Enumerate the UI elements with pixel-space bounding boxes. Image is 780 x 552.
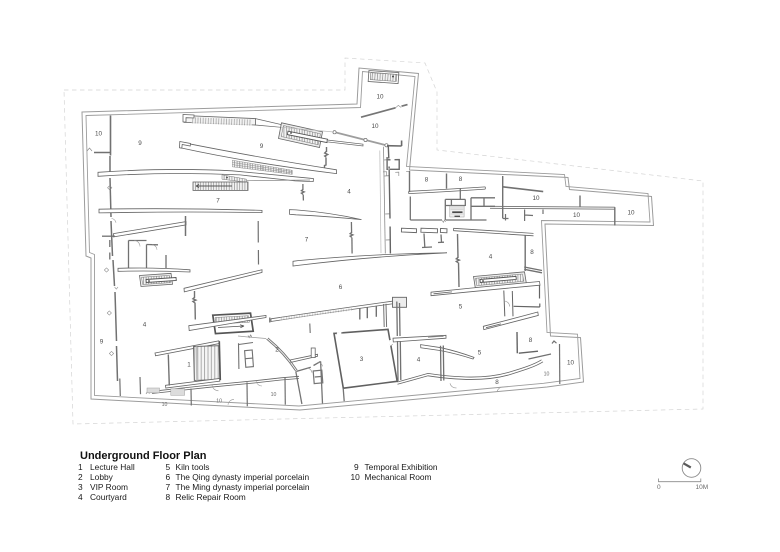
svg-text:6: 6 xyxy=(166,472,171,482)
svg-text:9: 9 xyxy=(354,462,359,472)
svg-text:Lecture Hall: Lecture Hall xyxy=(90,462,135,472)
svg-text:Mechanical Room: Mechanical Room xyxy=(365,472,432,482)
svg-text:9: 9 xyxy=(138,140,142,147)
svg-text:Lobby: Lobby xyxy=(90,472,114,482)
svg-text:5: 5 xyxy=(459,304,463,311)
svg-text:The Ming dynasty imperial porc: The Ming dynasty imperial porcelain xyxy=(176,482,310,492)
svg-text:0: 0 xyxy=(657,484,661,491)
svg-text:8: 8 xyxy=(530,249,534,256)
svg-text:Underground Floor Plan: Underground Floor Plan xyxy=(80,450,207,462)
svg-text:4: 4 xyxy=(143,322,147,329)
svg-text:8: 8 xyxy=(425,177,429,184)
svg-text:Relic Repair Room: Relic Repair Room xyxy=(176,492,246,502)
svg-text:2: 2 xyxy=(275,347,279,354)
svg-text:Temporal Exhibition: Temporal Exhibition xyxy=(365,462,438,472)
svg-text:7: 7 xyxy=(305,237,309,244)
svg-text:1: 1 xyxy=(78,462,83,472)
svg-text:3: 3 xyxy=(78,482,83,492)
svg-text:5: 5 xyxy=(166,462,171,472)
svg-text:10: 10 xyxy=(573,212,581,219)
svg-text:6: 6 xyxy=(339,284,343,291)
svg-text:7: 7 xyxy=(216,198,220,205)
svg-text:10M: 10M xyxy=(696,484,709,491)
svg-text:8: 8 xyxy=(495,379,499,386)
svg-text:9: 9 xyxy=(100,339,104,346)
svg-text:8: 8 xyxy=(459,176,463,183)
svg-text:Courtyard: Courtyard xyxy=(90,492,127,502)
svg-text:8: 8 xyxy=(529,337,533,344)
svg-text:2: 2 xyxy=(78,472,83,482)
svg-text:4: 4 xyxy=(489,254,493,261)
svg-text:4: 4 xyxy=(417,357,421,364)
svg-text:10: 10 xyxy=(567,360,575,367)
svg-text:10: 10 xyxy=(627,210,635,217)
svg-text:10: 10 xyxy=(376,94,384,101)
svg-text:10: 10 xyxy=(162,402,168,408)
svg-text:10: 10 xyxy=(351,472,361,482)
svg-text:VIP Room: VIP Room xyxy=(90,482,128,492)
svg-text:10: 10 xyxy=(216,399,222,405)
svg-text:The Qing dynasty imperial porc: The Qing dynasty imperial porcelain xyxy=(176,472,310,482)
svg-text:10: 10 xyxy=(544,372,550,378)
svg-text:4: 4 xyxy=(347,189,351,196)
svg-text:3: 3 xyxy=(360,356,364,363)
svg-text:10: 10 xyxy=(532,195,540,202)
svg-text:7: 7 xyxy=(166,482,171,492)
svg-text:4: 4 xyxy=(78,492,83,502)
svg-text:Kiln tools: Kiln tools xyxy=(176,462,210,472)
svg-text:10: 10 xyxy=(95,131,103,138)
svg-text:10: 10 xyxy=(371,123,379,130)
svg-text:5: 5 xyxy=(478,350,482,357)
svg-text:10: 10 xyxy=(271,392,277,398)
svg-text:8: 8 xyxy=(166,492,171,502)
svg-text:1: 1 xyxy=(187,362,191,369)
svg-text:9: 9 xyxy=(260,143,264,150)
